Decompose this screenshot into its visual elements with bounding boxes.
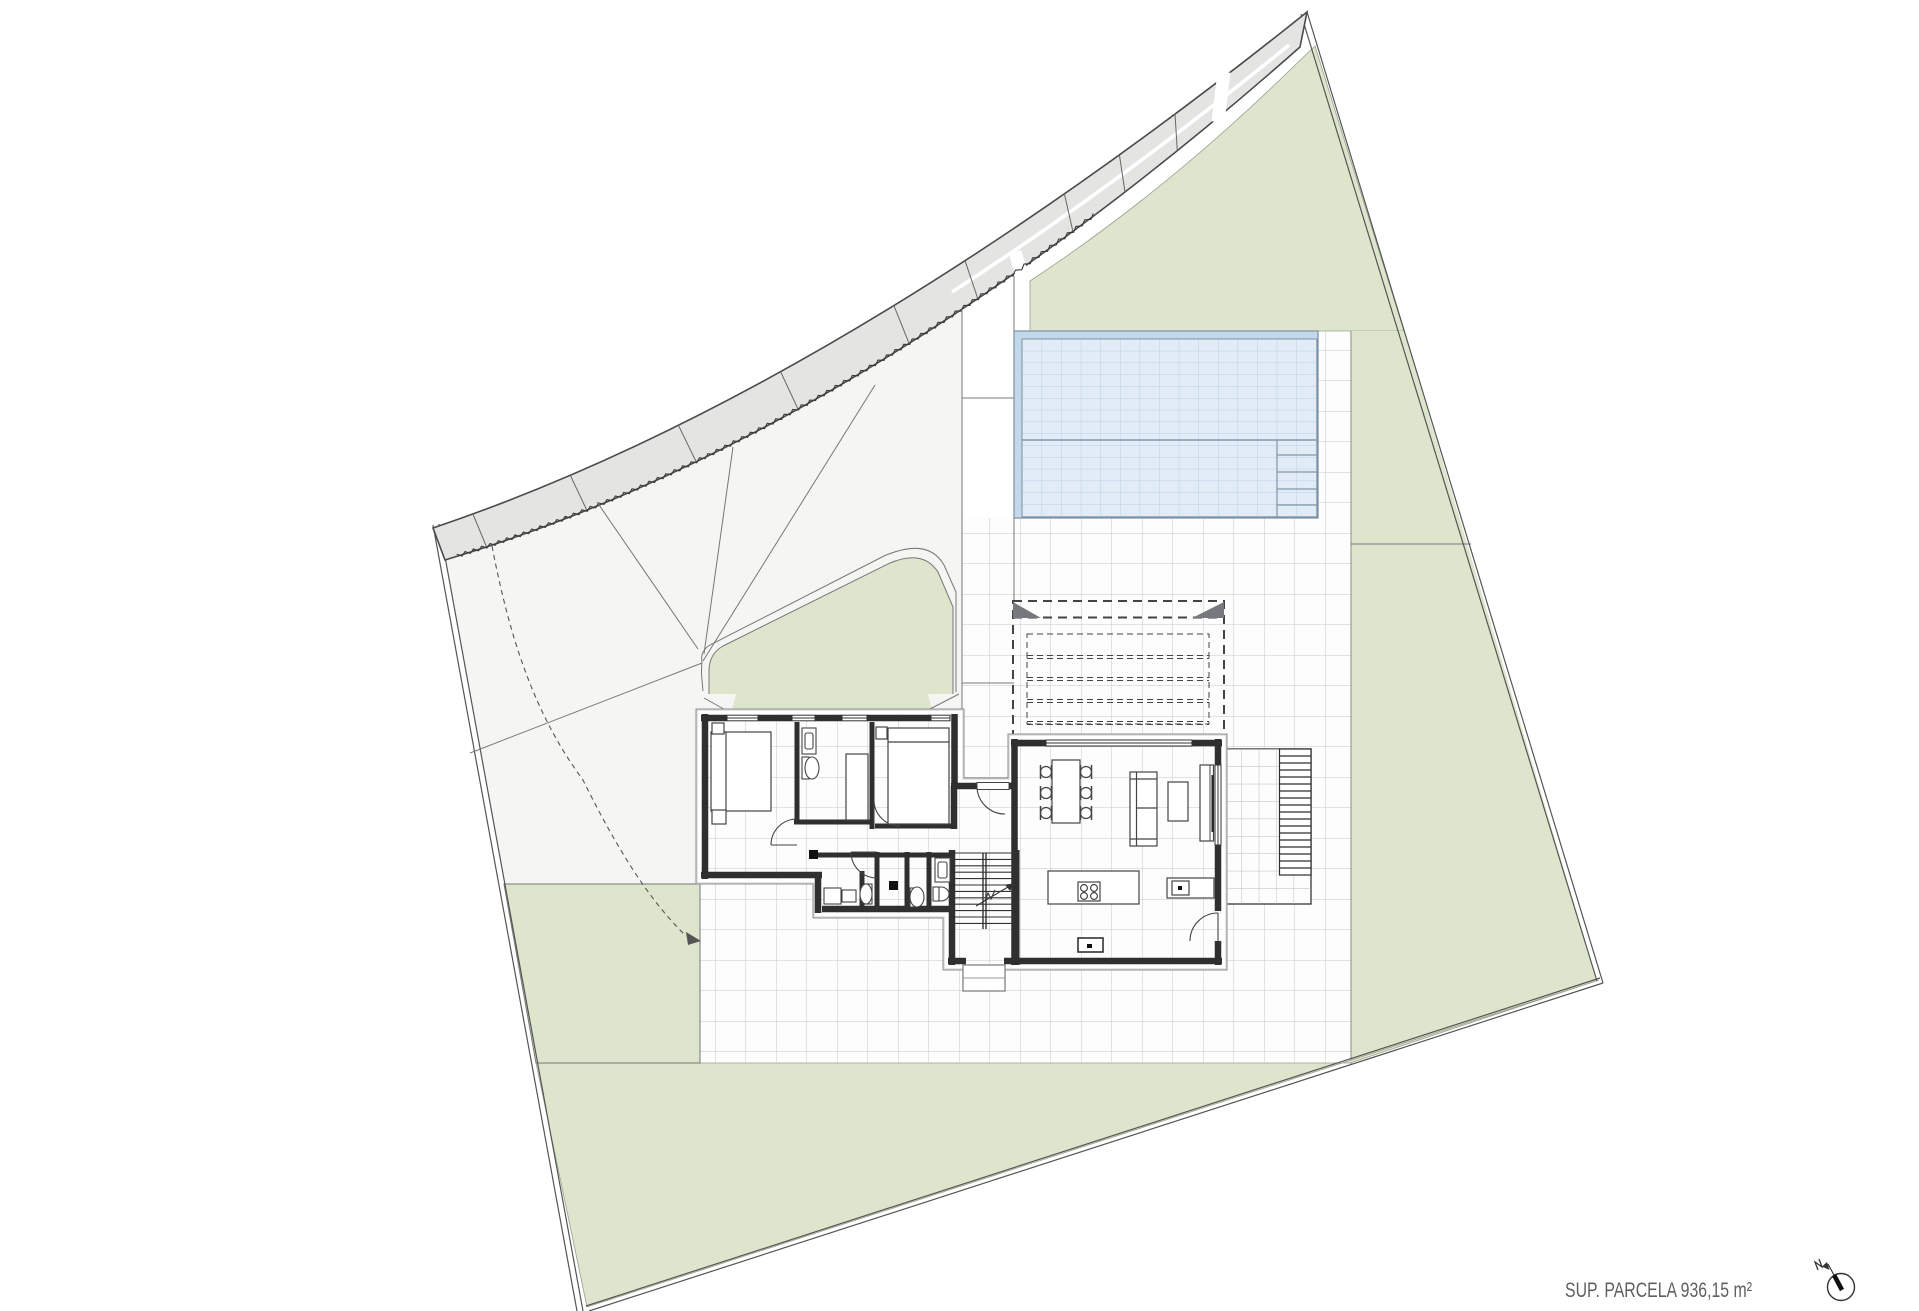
svg-text:SUP. PARCELA 936,15 m²: SUP. PARCELA 936,15 m² — [1565, 1279, 1752, 1302]
